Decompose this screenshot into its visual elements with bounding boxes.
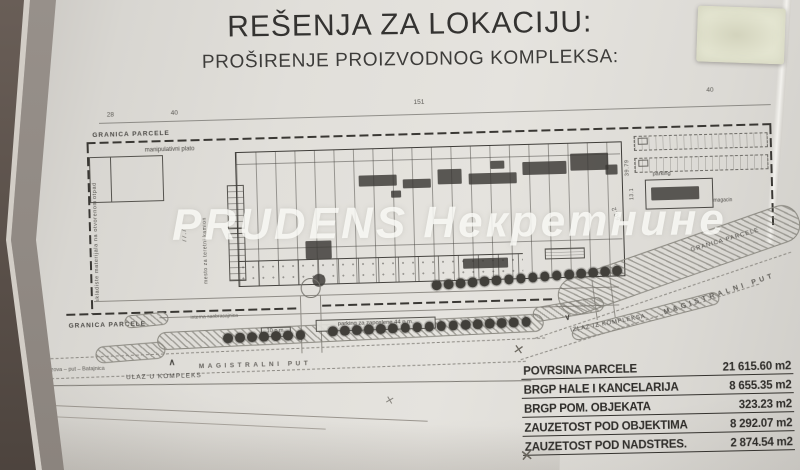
area-value: 8 655.35 m2	[729, 379, 792, 392]
areas-table: POVRSINA PARCELE 21 615.60 m2 BRGP HALE …	[521, 355, 795, 456]
tree-icon	[431, 280, 441, 290]
tree-icon	[516, 273, 526, 283]
tree-icon	[492, 275, 502, 285]
machinery	[522, 161, 566, 175]
waste-area-box	[89, 155, 164, 203]
tree-icon	[340, 326, 350, 336]
tree-icon	[448, 320, 458, 330]
parcel-boundary-bottom-right	[322, 298, 552, 307]
granica-parcele-top-label: GRANICA PARCELE	[92, 130, 170, 139]
tree-icon	[576, 268, 586, 278]
area-label: BRGP POM. OBJEKATA	[524, 401, 651, 416]
tree-icon	[473, 319, 483, 329]
tree-icon	[612, 265, 622, 275]
tree-icon	[509, 317, 519, 327]
waste-box-divider	[110, 158, 112, 202]
tree-icon	[364, 324, 374, 334]
manipulativni-plato-label: manipulativni plato	[145, 146, 195, 153]
tree-icon	[485, 318, 495, 328]
parking-stalls	[634, 154, 768, 173]
tree-icon	[283, 330, 293, 340]
area-value: 8 292.07 m2	[730, 417, 793, 430]
arrow-up-icon: ∧	[169, 357, 176, 368]
green-buffer-hatch	[124, 312, 169, 329]
machinery	[391, 190, 401, 197]
dim-40-right: 40	[706, 87, 713, 94]
legend-box	[638, 160, 648, 167]
tree-icon	[223, 333, 233, 343]
watermark: PRUDENS Некретнине	[172, 195, 727, 251]
tree-icon	[564, 269, 574, 279]
machinery	[463, 258, 508, 269]
photographed-site-plan-document: REŠENJA ZA LOKACIJU: PROŠIRENJE PROIZVOD…	[0, 0, 800, 470]
ulaz-u-kompleks-label: ULAZ U KOMPLEKS	[126, 372, 202, 381]
interna-saobracajnica-label: interna saobracajnica	[190, 313, 238, 321]
tree-icon	[540, 271, 550, 281]
tree-icon	[436, 321, 446, 331]
sticky-note	[696, 5, 786, 64]
area-label: BRGP HALE I KANCELARIJA	[524, 382, 679, 397]
tree-icon	[235, 333, 245, 343]
skladiste-label: skladiste materijala na otvorenom	[92, 207, 101, 302]
pazova-put-batajnica-label: Pazova – put – Batajnica	[44, 366, 105, 374]
parking-stalls	[634, 132, 768, 151]
tree-icon	[528, 272, 538, 282]
dim-28: 28	[107, 111, 114, 118]
green-buffer-hatch	[95, 341, 166, 364]
area-value: 2 874.54 m2	[730, 436, 793, 449]
otpad-label: otpad	[91, 161, 98, 199]
tree-icon	[504, 274, 514, 284]
tree-icon	[455, 278, 465, 288]
tree-icon	[400, 323, 410, 333]
tree-icon	[497, 318, 507, 328]
machinery	[437, 169, 461, 185]
dimension-line	[99, 104, 771, 124]
machinery	[359, 175, 397, 187]
tree-icon	[521, 317, 531, 327]
entrance-canopy-box	[545, 247, 585, 259]
tree-icon	[271, 331, 281, 341]
tree-icon	[443, 279, 453, 289]
machinery	[570, 153, 608, 171]
machinery	[490, 161, 504, 169]
tree-icon	[479, 276, 489, 286]
area-label: POVRSINA PARCELE	[523, 363, 637, 377]
tree-icon	[412, 322, 422, 332]
arrow-down-icon: ∨	[564, 312, 571, 322]
tree-icon	[424, 321, 434, 331]
tree-icon	[247, 332, 257, 342]
parking-small-label: parking	[653, 171, 671, 178]
title-line-1: REŠENJA ZA LOKACIJU:	[150, 4, 670, 45]
tree-icon	[259, 331, 269, 341]
area-label: ZAUZETOST POD NADSTRES.	[525, 438, 687, 453]
machinery	[605, 164, 617, 174]
tree-icon	[461, 320, 471, 330]
tree-icon	[600, 266, 610, 276]
tree-icon	[588, 267, 598, 277]
tree-icon	[552, 270, 562, 280]
area-label: ZAUZETOST POD OBJEKTIMA	[524, 419, 687, 434]
dim-151: 151	[413, 99, 424, 106]
document-title: REŠENJA ZA LOKACIJU: PROŠIRENJE PROIZVOD…	[150, 4, 671, 74]
x-mark-icon: ✕	[519, 445, 534, 465]
area-value: 21 615.60 m2	[723, 360, 792, 373]
drawing-frame-bottom	[41, 380, 531, 386]
tree-icon	[376, 324, 386, 334]
machinery	[469, 172, 517, 184]
tree-icon	[295, 330, 305, 340]
legend-box	[638, 138, 648, 145]
dim-39-79: 39.79	[624, 146, 631, 176]
tree-icon	[328, 326, 338, 336]
area-value: 323.23 m2	[739, 398, 792, 411]
tree-icon	[388, 323, 398, 333]
tree-icon	[467, 277, 477, 287]
tree-icon	[352, 325, 362, 335]
machinery	[403, 179, 431, 189]
dim-40-left: 40	[171, 110, 178, 117]
